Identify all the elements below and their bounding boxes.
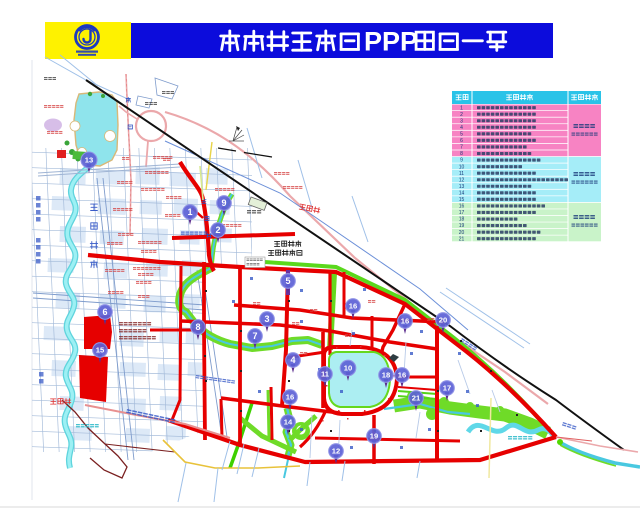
svg-text:6: 6	[460, 138, 463, 144]
svg-text:9: 9	[460, 158, 463, 164]
svg-text:16: 16	[401, 317, 409, 326]
svg-text:16: 16	[459, 204, 465, 210]
svg-text:8: 8	[195, 322, 200, 332]
svg-text:5: 5	[460, 132, 463, 138]
svg-text:1: 1	[187, 207, 192, 217]
svg-text:17: 17	[459, 210, 465, 216]
svg-text:21: 21	[412, 394, 421, 403]
svg-text:20: 20	[459, 230, 465, 236]
svg-text:14: 14	[284, 418, 293, 427]
svg-text:15: 15	[459, 197, 465, 203]
svg-text:19: 19	[370, 432, 378, 441]
svg-text:16: 16	[349, 302, 357, 311]
svg-text:11: 11	[459, 171, 464, 177]
svg-text:1: 1	[460, 105, 463, 111]
svg-text:13: 13	[459, 184, 465, 190]
svg-text:10: 10	[344, 364, 352, 373]
svg-text:21: 21	[459, 236, 465, 242]
svg-text:20: 20	[439, 316, 447, 325]
svg-text:5: 5	[285, 276, 290, 286]
svg-text:10: 10	[459, 164, 465, 170]
svg-text:7: 7	[252, 331, 257, 341]
svg-text:14: 14	[459, 191, 465, 197]
svg-text:7: 7	[460, 145, 463, 151]
svg-text:16: 16	[286, 393, 294, 402]
svg-text:3: 3	[460, 118, 463, 124]
svg-text:12: 12	[332, 447, 340, 456]
svg-text:6: 6	[102, 307, 107, 317]
svg-text:17: 17	[443, 384, 451, 393]
svg-text:15: 15	[96, 346, 105, 355]
svg-text:2: 2	[215, 225, 220, 235]
svg-text:16: 16	[398, 371, 406, 380]
svg-text:2: 2	[460, 112, 463, 118]
svg-text:PPP: PPP	[364, 27, 418, 57]
svg-text:3: 3	[264, 314, 269, 324]
svg-text:18: 18	[459, 217, 465, 223]
svg-text:9: 9	[221, 198, 226, 208]
svg-text:19: 19	[459, 223, 465, 229]
svg-text:4: 4	[460, 125, 463, 131]
svg-text:8: 8	[460, 151, 463, 157]
svg-text:4: 4	[290, 355, 295, 365]
svg-text:13: 13	[85, 156, 93, 165]
svg-text:12: 12	[459, 177, 465, 183]
svg-text:18: 18	[382, 371, 390, 380]
svg-text:11: 11	[321, 370, 330, 379]
